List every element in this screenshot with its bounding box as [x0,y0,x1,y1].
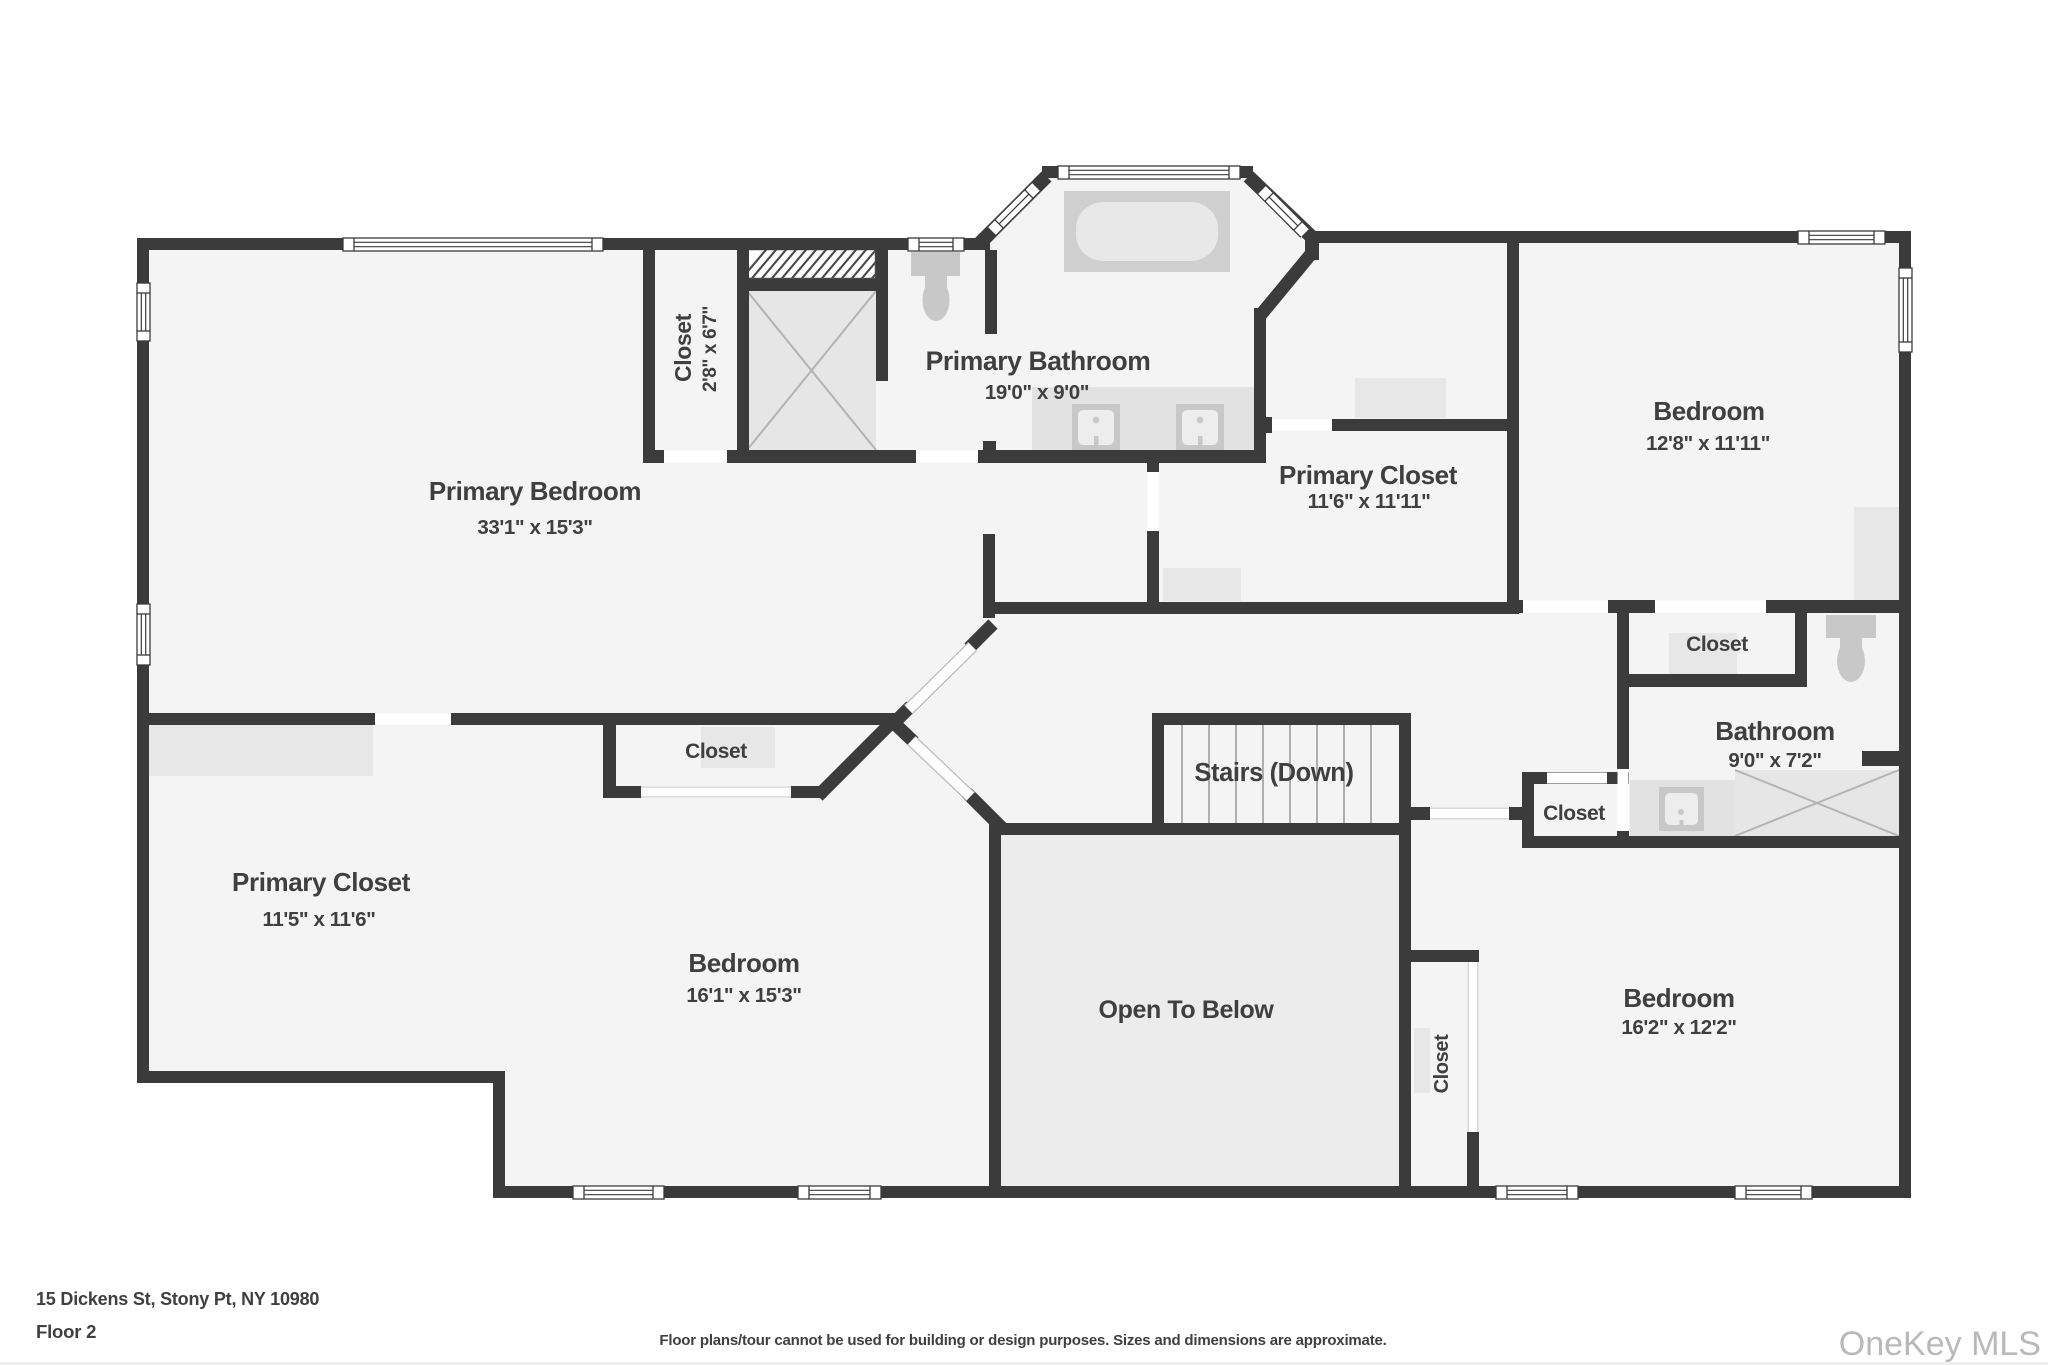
svg-text:Stairs (Down): Stairs (Down) [1194,759,1353,787]
svg-text:Floor 2: Floor 2 [36,1321,96,1342]
svg-text:Closet: Closet [670,313,696,382]
svg-text:Primary Bathroom: Primary Bathroom [926,346,1151,376]
svg-text:Primary Closet: Primary Closet [232,867,411,897]
svg-text:2'8" x 6'7": 2'8" x 6'7" [700,306,721,392]
svg-text:11'6" x 11'11": 11'6" x 11'11" [1308,490,1431,513]
svg-text:19'0" x 9'0": 19'0" x 9'0" [985,381,1089,404]
svg-text:Bedroom: Bedroom [688,948,799,978]
svg-text:Primary Closet: Primary Closet [1279,460,1458,490]
svg-text:Primary Bedroom: Primary Bedroom [429,476,641,506]
svg-text:Closet: Closet [1431,1034,1453,1093]
svg-text:33'1" x 15'3": 33'1" x 15'3" [477,516,592,539]
svg-text:OneKey MLS: OneKey MLS [1839,1325,2041,1363]
svg-text:Bedroom: Bedroom [1623,983,1734,1013]
svg-text:Closet: Closet [1543,802,1605,825]
svg-text:Floor plans/tour cannot be use: Floor plans/tour cannot be used for buil… [659,1332,1386,1349]
svg-text:Bedroom: Bedroom [1653,396,1764,426]
svg-text:Closet: Closet [1686,633,1748,656]
svg-text:12'8" x 11'11": 12'8" x 11'11" [1646,432,1770,455]
svg-text:Closet: Closet [685,740,747,763]
svg-text:Open To Below: Open To Below [1099,996,1275,1024]
svg-text:16'1" x 15'3": 16'1" x 15'3" [686,984,801,1007]
svg-text:15 Dickens St, Stony Pt, NY 10: 15 Dickens St, Stony Pt, NY 10980 [36,1289,319,1309]
svg-text:Bathroom: Bathroom [1715,716,1835,746]
svg-text:11'5" x 11'6": 11'5" x 11'6" [263,908,376,931]
svg-text:9'0" x 7'2": 9'0" x 7'2" [1728,749,1821,772]
svg-text:16'2" x 12'2": 16'2" x 12'2" [1621,1016,1736,1039]
